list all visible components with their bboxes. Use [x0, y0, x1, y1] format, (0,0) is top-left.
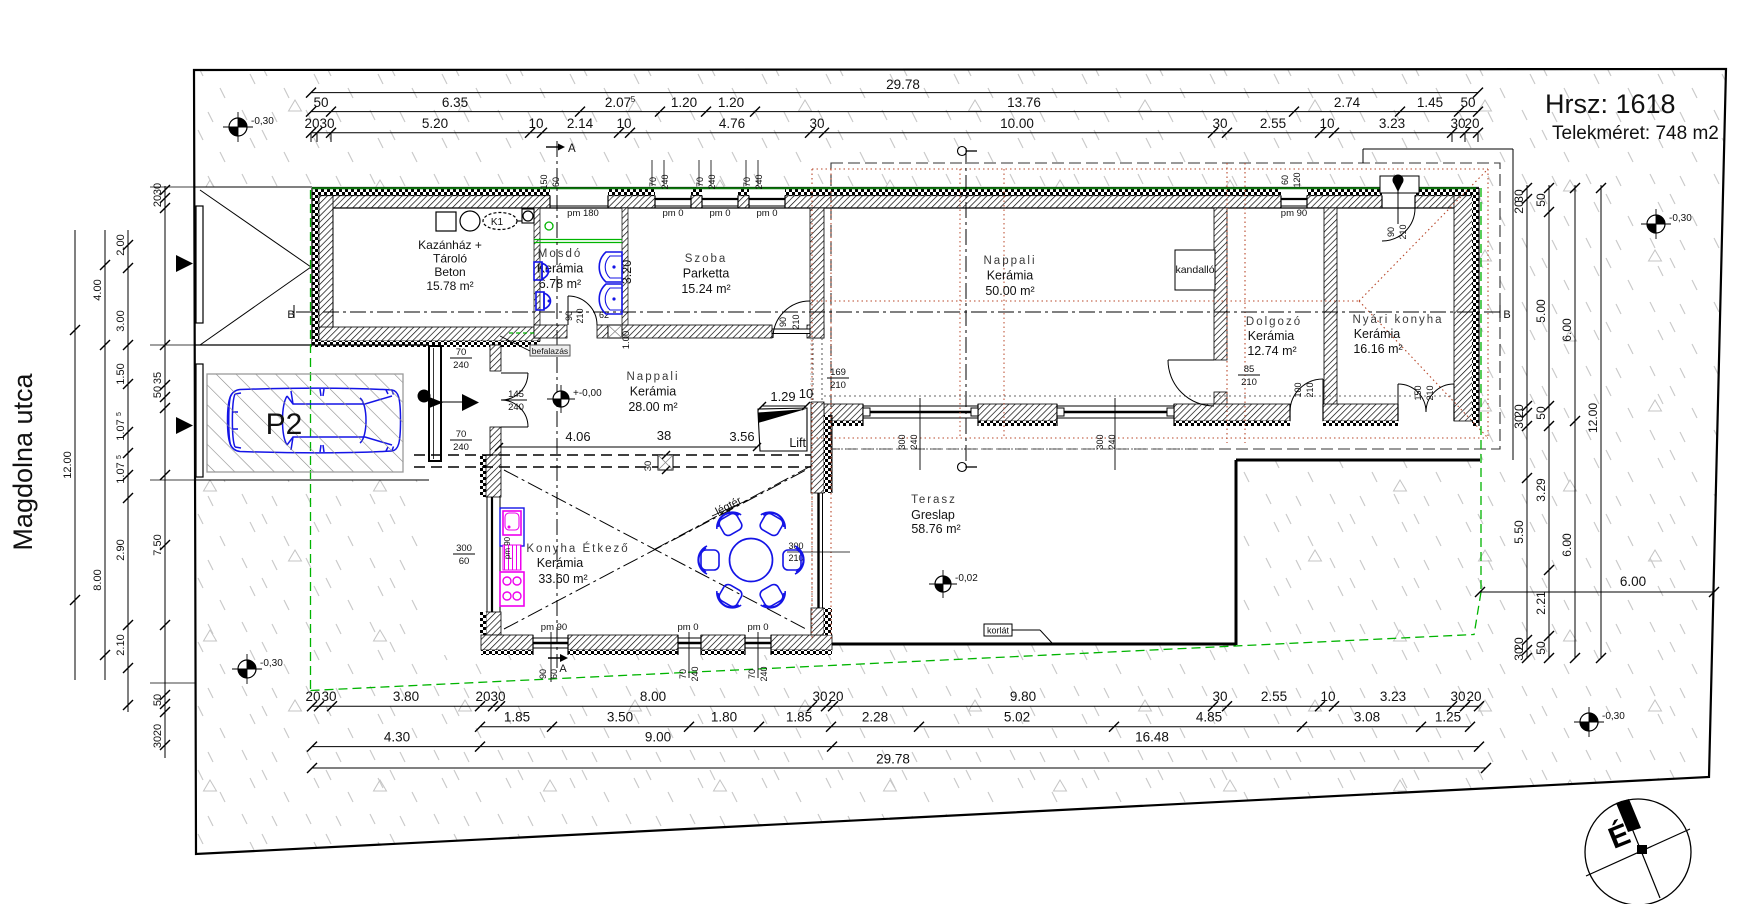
svg-text:150: 150 [539, 174, 549, 189]
svg-text:20: 20 [305, 689, 320, 704]
svg-text:29.78: 29.78 [886, 77, 920, 92]
svg-text:Mosdó: Mosdó [538, 248, 583, 260]
svg-text:2.74: 2.74 [1334, 95, 1361, 110]
svg-text:1.07: 1.07 [115, 419, 127, 440]
svg-text:5: 5 [631, 95, 636, 104]
svg-text:10: 10 [1320, 689, 1335, 704]
svg-text:13.76: 13.76 [1007, 95, 1041, 110]
svg-text:6.35: 6.35 [442, 95, 468, 110]
svg-text:210: 210 [575, 308, 585, 323]
svg-text:12.74 m²: 12.74 m² [1247, 344, 1296, 358]
svg-text:5.20: 5.20 [422, 116, 448, 131]
svg-text:6.00: 6.00 [1560, 533, 1574, 557]
svg-text:300: 300 [1095, 434, 1105, 449]
svg-text:240: 240 [453, 442, 469, 453]
svg-text:8.00: 8.00 [640, 689, 666, 704]
svg-text:Magdolna utca: Magdolna utca [8, 372, 38, 550]
svg-text:2.10: 2.10 [115, 634, 127, 655]
svg-text:Beton: Beton [434, 265, 465, 279]
svg-text:pm 0: pm 0 [709, 208, 730, 219]
svg-text:120: 120 [1292, 172, 1302, 187]
svg-text:33.60 m²: 33.60 m² [538, 572, 587, 586]
svg-text:Kerámia: Kerámia [987, 269, 1034, 283]
svg-text:12.00: 12.00 [1586, 403, 1600, 433]
svg-text:30: 30 [1450, 116, 1465, 131]
svg-text:Tároló: Tároló [433, 252, 467, 266]
svg-text:20: 20 [1464, 116, 1479, 131]
svg-text:20: 20 [152, 195, 164, 207]
svg-text:1.00: 1.00 [621, 331, 632, 350]
svg-text:30: 30 [321, 689, 336, 704]
svg-text:30: 30 [152, 736, 164, 748]
svg-text:befalazás: befalazás [532, 346, 568, 356]
svg-text:2.55: 2.55 [1261, 689, 1287, 704]
svg-text:6.78 m²: 6.78 m² [539, 277, 581, 291]
svg-text:90: 90 [538, 669, 548, 679]
svg-text:5: 5 [116, 412, 123, 416]
svg-text:58.76 m²: 58.76 m² [911, 522, 960, 536]
svg-text:Telekméret: 748 m2: Telekméret: 748 m2 [1552, 123, 1719, 144]
svg-text:20: 20 [1512, 200, 1526, 214]
svg-text:Nyári konyha: Nyári konyha [1352, 314, 1443, 326]
svg-text:20: 20 [1466, 689, 1481, 704]
svg-text:2.90: 2.90 [115, 539, 127, 560]
svg-text:30: 30 [1212, 689, 1227, 704]
svg-text:15.24 m²: 15.24 m² [681, 282, 730, 296]
svg-text:2.28: 2.28 [862, 710, 888, 725]
svg-text:1.20: 1.20 [718, 95, 744, 110]
svg-text:60: 60 [1280, 175, 1290, 185]
svg-text:P2: P2 [266, 408, 303, 441]
svg-text:10: 10 [799, 386, 813, 401]
svg-text:28.00 m²: 28.00 m² [628, 400, 677, 414]
svg-text:35: 35 [152, 372, 164, 384]
svg-text:10: 10 [1319, 116, 1334, 131]
svg-text:70: 70 [695, 177, 705, 187]
svg-text:9.00: 9.00 [645, 730, 671, 745]
svg-text:20: 20 [152, 724, 164, 736]
svg-text:pm 0: pm 0 [677, 622, 698, 633]
svg-text:1.45: 1.45 [1417, 95, 1443, 110]
svg-text:1.25: 1.25 [1435, 710, 1461, 725]
svg-text:pm 180: pm 180 [567, 208, 599, 219]
svg-text:70: 70 [742, 177, 752, 187]
svg-text:2.00: 2.00 [115, 234, 127, 255]
svg-text:pm 0: pm 0 [747, 622, 768, 633]
svg-text:70: 70 [456, 347, 467, 358]
svg-text:3.56: 3.56 [729, 429, 754, 444]
svg-text:kandalló: kandalló [1175, 264, 1214, 276]
svg-text:50: 50 [152, 386, 164, 398]
svg-text:12.00: 12.00 [62, 451, 74, 479]
svg-text:100: 100 [1293, 382, 1303, 397]
svg-text:210: 210 [1425, 385, 1435, 400]
svg-text:9.80: 9.80 [1010, 689, 1036, 704]
svg-text:90: 90 [564, 311, 574, 321]
svg-text:4.00: 4.00 [92, 279, 104, 300]
svg-text:10: 10 [528, 116, 543, 131]
svg-text:4.85: 4.85 [1196, 710, 1222, 725]
svg-text:A: A [559, 663, 567, 675]
svg-text:-0,30: -0,30 [1602, 711, 1625, 722]
svg-text:Szoba: Szoba [685, 253, 728, 265]
svg-text:210: 210 [1305, 382, 1315, 397]
svg-text:145: 145 [508, 389, 524, 400]
svg-text:30: 30 [1512, 647, 1526, 661]
svg-text:70: 70 [747, 669, 757, 679]
svg-text:150: 150 [1413, 385, 1423, 400]
svg-text:pm 0: pm 0 [756, 208, 777, 219]
svg-text:16.48: 16.48 [1135, 730, 1169, 745]
svg-text:50: 50 [313, 95, 328, 110]
svg-text:3.00: 3.00 [115, 310, 127, 331]
svg-text:240: 240 [707, 174, 717, 189]
svg-text:-0,30: -0,30 [260, 658, 283, 669]
svg-text:85: 85 [1244, 364, 1255, 375]
svg-text:pm 90: pm 90 [503, 536, 512, 559]
svg-text:16.16 m²: 16.16 m² [1353, 342, 1402, 356]
svg-text:169: 169 [830, 367, 846, 378]
svg-text:Lift: Lift [789, 436, 806, 450]
svg-text:90: 90 [778, 317, 788, 327]
svg-text:210: 210 [830, 380, 846, 391]
svg-text:240: 240 [660, 174, 670, 189]
svg-text:240: 240 [909, 434, 919, 449]
svg-text:pm 90: pm 90 [1281, 208, 1307, 219]
svg-text:3.23: 3.23 [1380, 689, 1406, 704]
svg-text:30: 30 [1512, 415, 1526, 429]
svg-text:4.06: 4.06 [565, 429, 590, 444]
svg-text:50: 50 [1460, 95, 1475, 110]
svg-text:30: 30 [809, 116, 824, 131]
svg-text:Kerámia: Kerámia [630, 385, 677, 399]
svg-text:20: 20 [304, 116, 319, 131]
svg-text:1.20: 1.20 [671, 95, 697, 110]
svg-text:Dolgozó: Dolgozó [1246, 316, 1302, 328]
svg-text:20: 20 [828, 689, 843, 704]
svg-text:1.29: 1.29 [770, 389, 795, 404]
svg-text:Nappali: Nappali [984, 255, 1037, 267]
svg-text:1.07: 1.07 [115, 462, 127, 483]
svg-text:Parketta: Parketta [683, 267, 730, 281]
svg-text:70: 70 [678, 669, 688, 679]
svg-text:70: 70 [456, 429, 467, 440]
svg-text:3.29: 3.29 [1534, 478, 1548, 502]
svg-text:240: 240 [754, 174, 764, 189]
svg-text:1.80: 1.80 [711, 710, 737, 725]
svg-text:4.30: 4.30 [384, 730, 410, 745]
svg-text:240: 240 [690, 666, 700, 681]
svg-text:240: 240 [453, 360, 469, 371]
svg-text:Nappali: Nappali [627, 371, 680, 383]
svg-text:50: 50 [1534, 193, 1548, 207]
svg-text:30: 30 [152, 183, 164, 195]
svg-text:-0,30: -0,30 [251, 116, 274, 127]
svg-text:1.85: 1.85 [786, 710, 812, 725]
svg-text:1.85: 1.85 [504, 710, 530, 725]
svg-text:Greslap: Greslap [911, 508, 955, 522]
svg-text:Kerámia: Kerámia [1248, 329, 1295, 343]
svg-text:90: 90 [1386, 227, 1396, 237]
svg-text:2.55: 2.55 [1260, 116, 1286, 131]
svg-text:38: 38 [657, 428, 671, 443]
svg-text:pm 90: pm 90 [541, 622, 567, 633]
svg-text:3.08: 3.08 [1354, 710, 1380, 725]
svg-text:korlát: korlát [987, 626, 1010, 636]
svg-text:300: 300 [897, 434, 907, 449]
svg-text:30: 30 [1450, 689, 1465, 704]
svg-text:10: 10 [616, 116, 631, 131]
svg-text:50: 50 [1534, 641, 1548, 655]
svg-text:5: 5 [116, 455, 123, 459]
svg-text:8.00: 8.00 [92, 569, 104, 590]
svg-text:+-0,00: +-0,00 [573, 388, 602, 399]
svg-text:3.80: 3.80 [393, 689, 419, 704]
svg-text:240: 240 [759, 666, 769, 681]
svg-text:2.21: 2.21 [1534, 591, 1548, 615]
svg-text:50: 50 [152, 694, 164, 706]
svg-text:60: 60 [459, 556, 470, 567]
svg-text:29.78: 29.78 [876, 752, 910, 767]
svg-text:30: 30 [1212, 116, 1227, 131]
svg-text:1.50: 1.50 [115, 363, 127, 384]
svg-text:5.00: 5.00 [1534, 299, 1548, 323]
svg-text:7.50: 7.50 [152, 534, 164, 555]
svg-text:70: 70 [648, 177, 658, 187]
svg-text:6.00: 6.00 [1620, 574, 1646, 589]
svg-text:Hrsz: 1618: Hrsz: 1618 [1545, 89, 1676, 119]
svg-text:Kerámia: Kerámia [1354, 327, 1401, 341]
svg-text:5.50: 5.50 [1512, 520, 1526, 544]
svg-text:A: A [568, 143, 576, 155]
svg-text:Kazánház +: Kazánház + [418, 238, 482, 252]
svg-text:4.76: 4.76 [719, 116, 745, 131]
svg-text:50: 50 [1534, 406, 1548, 420]
svg-text:15.78 m²: 15.78 m² [426, 279, 473, 293]
svg-text:6.00: 6.00 [1560, 318, 1574, 342]
svg-text:10.00: 10.00 [1000, 116, 1034, 131]
svg-text:210: 210 [1241, 377, 1257, 388]
svg-text:240: 240 [508, 402, 524, 413]
svg-text:210: 210 [1398, 224, 1408, 239]
svg-text:3.50: 3.50 [607, 710, 633, 725]
svg-text:5.02: 5.02 [1004, 710, 1030, 725]
svg-text:30: 30 [812, 689, 827, 704]
svg-text:20: 20 [475, 689, 490, 704]
svg-text:240: 240 [1107, 434, 1117, 449]
svg-text:60: 60 [549, 669, 559, 679]
svg-text:210: 210 [791, 314, 801, 329]
svg-text:2.14: 2.14 [567, 116, 594, 131]
svg-text:2.07: 2.07 [605, 95, 631, 110]
svg-text:K1: K1 [491, 217, 504, 228]
svg-text:300: 300 [456, 543, 472, 554]
svg-text:30: 30 [319, 116, 334, 131]
svg-text:-0,30: -0,30 [1669, 213, 1692, 224]
svg-text:Konyha Étkező: Konyha Étkező [526, 542, 629, 555]
svg-text:30: 30 [643, 461, 654, 472]
svg-text:30: 30 [490, 689, 505, 704]
svg-text:Terasz: Terasz [911, 494, 957, 506]
svg-text:Kerámia: Kerámia [537, 556, 584, 570]
svg-text:3.23: 3.23 [1379, 116, 1405, 131]
svg-text:60: 60 [551, 177, 561, 187]
svg-text:50.00 m²: 50.00 m² [985, 284, 1034, 298]
svg-text:pm 0: pm 0 [662, 208, 683, 219]
svg-text:B: B [1503, 309, 1510, 321]
svg-text:-0,02: -0,02 [955, 573, 978, 584]
